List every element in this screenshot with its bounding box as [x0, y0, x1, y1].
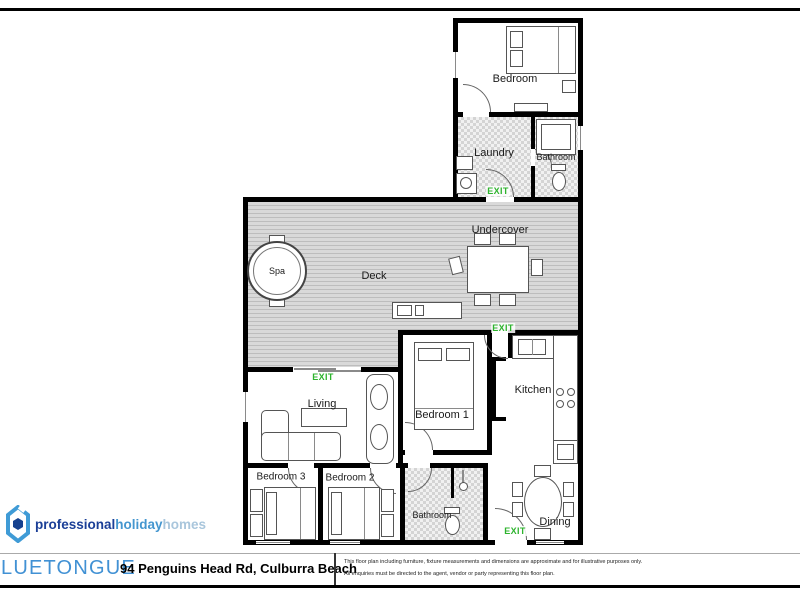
room-label-spa: Spa [269, 266, 285, 276]
low-shelf [514, 103, 548, 112]
window-line [256, 542, 290, 543]
property-address: 94 Penguins Head Rd, Culburra Beach [120, 561, 357, 576]
exit-label-dining: EXIT [503, 526, 527, 536]
shower-base [541, 124, 571, 150]
sofa-cushion [370, 424, 388, 450]
shower-screen [451, 468, 454, 498]
wall [400, 463, 405, 545]
toilet-tank [551, 164, 566, 171]
chair [512, 482, 523, 497]
bedside-shelf [250, 489, 263, 512]
room-label-bedroom-1: Bedroom 1 [415, 409, 469, 421]
sink-divider [532, 339, 533, 355]
chair [563, 502, 574, 517]
chair [534, 528, 551, 540]
chair [512, 502, 523, 517]
agency-logo: professionalholidayhomes [6, 505, 236, 547]
pillow [331, 492, 342, 535]
window-line [455, 52, 456, 78]
wall [531, 117, 535, 149]
toilet [552, 172, 566, 191]
chair [499, 294, 516, 306]
window-line [330, 542, 360, 543]
room-label-living: Living [308, 398, 337, 410]
wall [243, 197, 583, 202]
logo-word-homes: homes [163, 517, 207, 532]
room-label-kitchen: Kitchen [515, 384, 552, 396]
sofa-cushion [370, 384, 388, 410]
window-line [580, 126, 581, 150]
logo-word-holiday: holiday [115, 517, 162, 532]
room-label-dining: Dining [539, 516, 570, 528]
hexagon-house-icon [6, 505, 30, 543]
robe-wall [492, 357, 496, 421]
disclaimer-line-2: All enquiries must be directed to the ag… [344, 571, 555, 577]
logo-word-professional: professional [35, 517, 115, 532]
sofa-cushion-line [288, 433, 289, 460]
robe-wall [492, 417, 506, 421]
bedside-shelf [381, 489, 394, 512]
chair [531, 259, 543, 276]
coffee-table [301, 408, 347, 427]
laundry-sink [456, 156, 473, 170]
outdoor-table [467, 246, 529, 293]
door-opening [486, 197, 514, 202]
chair [534, 465, 551, 477]
floor-plan-page: Bedroom Laundry Bathroom Undercover Deck… [0, 0, 800, 600]
wall [398, 330, 492, 335]
sofa [261, 432, 341, 461]
dishwasher-inner [557, 444, 574, 460]
room-label-bathroom-upper: Bathroom [536, 152, 575, 162]
bedside-shelf [381, 514, 394, 537]
pillow [266, 492, 277, 535]
room-label-bedroom-2: Bedroom 2 [326, 473, 375, 484]
stove-burner [556, 400, 564, 408]
wall [483, 463, 488, 545]
pillow [418, 348, 442, 361]
exit-label-living: EXIT [311, 372, 335, 382]
stove-burner [567, 388, 575, 396]
exit-label-kitchen: EXIT [491, 323, 515, 333]
logo-wordmark: professionalholidayhomes [35, 517, 206, 532]
side-table [562, 80, 576, 93]
wall [453, 18, 583, 23]
door-opening [495, 540, 527, 545]
room-label-bedroom-3: Bedroom 3 [257, 472, 306, 483]
top-border-line [0, 8, 800, 11]
room-label-bedroom-top: Bedroom [493, 73, 538, 85]
wall [398, 330, 403, 463]
disclaimer-line-1: This floor plan including furniture, fix… [344, 559, 642, 565]
window-line [245, 392, 246, 422]
room-label-bathroom-lower: Bathroom [412, 510, 451, 520]
room-label-undercover: Undercover [472, 224, 529, 236]
wall [243, 540, 583, 545]
footer-top-rule [0, 553, 800, 554]
door-opening [463, 112, 489, 117]
stove-burner [556, 388, 564, 396]
bbq [397, 305, 412, 316]
bottom-border-line [0, 585, 800, 588]
window-line [536, 542, 564, 543]
wall [578, 18, 583, 545]
room-label-laundry: Laundry [474, 147, 514, 159]
chair [563, 482, 574, 497]
chair [474, 294, 491, 306]
footer-divider [334, 553, 336, 585]
bedside-shelf [250, 514, 263, 537]
pillow [446, 348, 470, 361]
bed-fold-line [364, 488, 365, 539]
washing-machine-drum [460, 177, 472, 189]
bed-fold-line [558, 27, 559, 73]
wall [318, 468, 323, 545]
sofa-cushion-line [314, 433, 315, 460]
bed-fold-line [300, 488, 301, 539]
door-opening [405, 450, 433, 455]
pillow [510, 31, 523, 48]
bbq [415, 305, 424, 316]
room-label-deck: Deck [361, 270, 386, 282]
pillow [510, 50, 523, 67]
property-name: LUETONGUE [1, 557, 136, 580]
deck-floor [248, 330, 398, 367]
exit-label-laundry: EXIT [486, 186, 510, 196]
shower-head [459, 482, 468, 491]
stove-burner [567, 400, 575, 408]
door-arc [463, 84, 491, 112]
